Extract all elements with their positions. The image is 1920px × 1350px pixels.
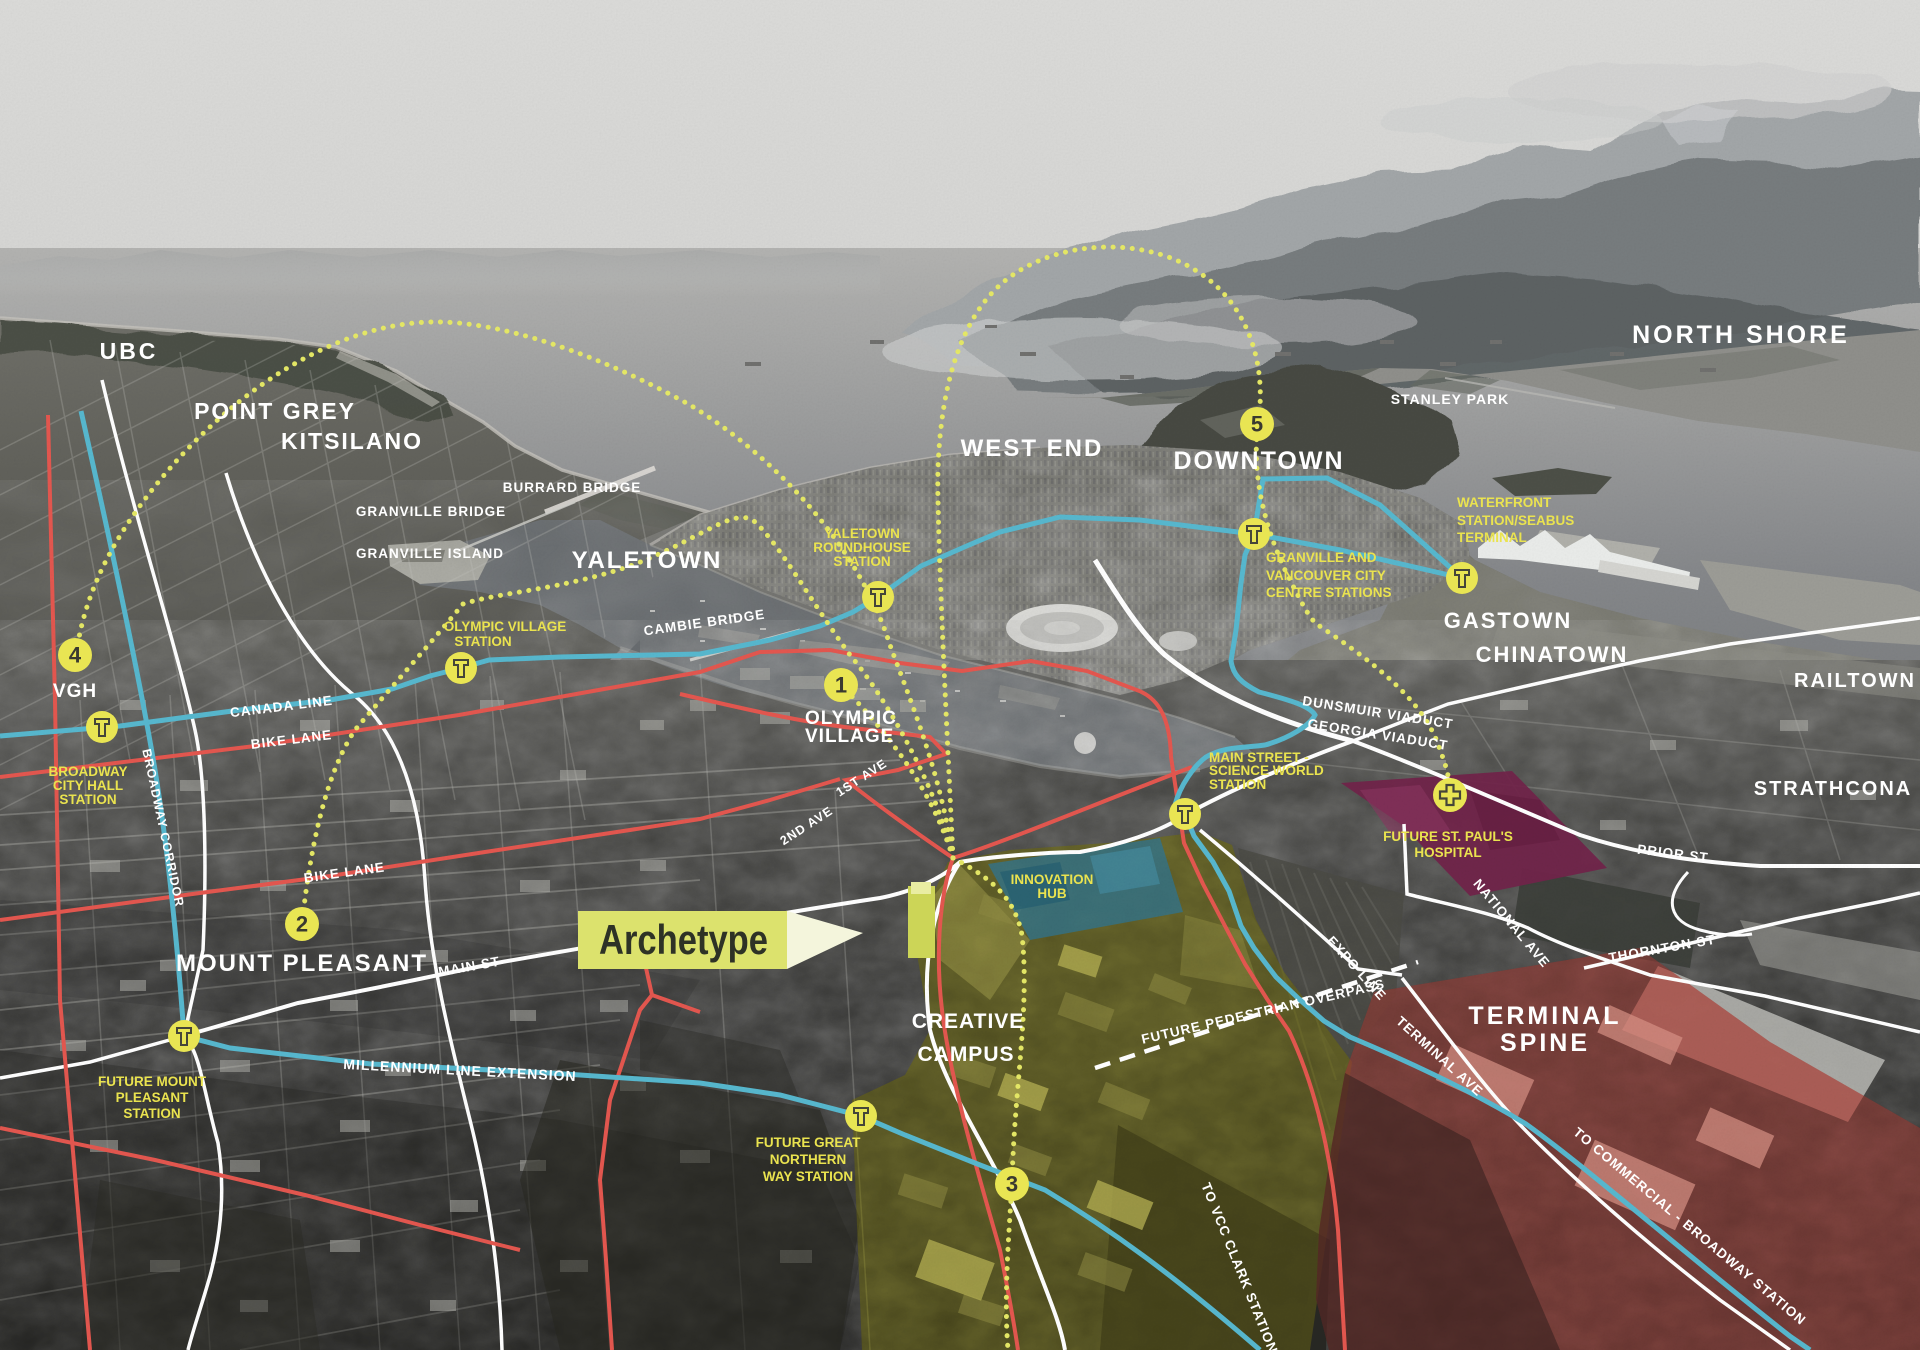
svg-text:STRATHCONA: STRATHCONA xyxy=(1754,778,1913,800)
svg-text:NORTH SHORE: NORTH SHORE xyxy=(1632,321,1850,349)
svg-text:OLYMPIC VILLAGE: OLYMPIC VILLAGE xyxy=(444,619,567,634)
svg-text:3: 3 xyxy=(1006,1172,1018,1197)
svg-text:DOWNTOWN: DOWNTOWN xyxy=(1173,447,1344,475)
svg-text:TERMINAL: TERMINAL xyxy=(1468,1002,1621,1030)
svg-text:CITY HALL: CITY HALL xyxy=(53,778,123,793)
svg-text:STATION: STATION xyxy=(123,1106,180,1121)
svg-text:VGH: VGH xyxy=(53,681,97,702)
svg-text:ROUNDHOUSE: ROUNDHOUSE xyxy=(813,540,911,555)
svg-text:STATION: STATION xyxy=(1209,777,1266,792)
svg-text:POINT GREY: POINT GREY xyxy=(194,398,356,424)
svg-text:PLEASANT: PLEASANT xyxy=(116,1090,190,1105)
svg-text:GRANVILLE BRIDGE: GRANVILLE BRIDGE xyxy=(356,504,506,519)
svg-text:NORTHERN: NORTHERN xyxy=(770,1152,847,1167)
svg-text:STATION/SEABUS: STATION/SEABUS xyxy=(1457,513,1574,528)
svg-text:BROADWAY: BROADWAY xyxy=(48,764,127,779)
svg-text:VILLAGE: VILLAGE xyxy=(805,726,894,747)
svg-text:GASTOWN: GASTOWN xyxy=(1444,608,1572,633)
svg-text:STATION: STATION xyxy=(454,634,511,649)
svg-text:1: 1 xyxy=(835,673,847,698)
svg-text:WEST END: WEST END xyxy=(961,435,1104,462)
svg-text:YALETOWN: YALETOWN xyxy=(572,547,723,574)
svg-text:STATION: STATION xyxy=(59,792,116,807)
svg-text:RAILTOWN: RAILTOWN xyxy=(1794,670,1916,692)
svg-text:VANCOUVER CITY: VANCOUVER CITY xyxy=(1266,568,1386,583)
svg-text:INNOVATION: INNOVATION xyxy=(1011,872,1094,887)
svg-text:WAY STATION: WAY STATION xyxy=(763,1169,853,1184)
svg-text:4: 4 xyxy=(69,643,82,668)
svg-text:UBC: UBC xyxy=(100,338,159,364)
svg-text:GRANVILLE ISLAND: GRANVILLE ISLAND xyxy=(356,546,504,561)
svg-text:SCIENCE WORLD: SCIENCE WORLD xyxy=(1209,763,1324,778)
svg-text:GRANVILLE AND: GRANVILLE AND xyxy=(1266,550,1377,565)
svg-text:HOSPITAL: HOSPITAL xyxy=(1414,845,1481,860)
svg-text:2: 2 xyxy=(296,912,308,937)
svg-text:HUB: HUB xyxy=(1037,886,1066,901)
svg-text:CENTRE STATIONS: CENTRE STATIONS xyxy=(1266,585,1392,600)
svg-text:MOUNT PLEASANT: MOUNT PLEASANT xyxy=(176,950,428,977)
svg-text:KITSILANO: KITSILANO xyxy=(281,428,423,454)
svg-text:WATERFRONT: WATERFRONT xyxy=(1457,495,1552,510)
svg-text:FUTURE MOUNT: FUTURE MOUNT xyxy=(98,1074,207,1089)
svg-text:CREATIVE: CREATIVE xyxy=(912,1010,1025,1033)
svg-text:TERMINAL: TERMINAL xyxy=(1457,530,1527,545)
svg-text:STATION: STATION xyxy=(833,554,890,569)
svg-text:FUTURE ST. PAUL'S: FUTURE ST. PAUL'S xyxy=(1383,829,1513,844)
svg-text:BURRARD BRIDGE: BURRARD BRIDGE xyxy=(503,480,642,495)
svg-text:YALETOWN: YALETOWN xyxy=(824,526,900,541)
svg-text:SPINE: SPINE xyxy=(1500,1029,1590,1057)
svg-text:Archetype: Archetype xyxy=(599,916,768,963)
svg-text:CAMPUS: CAMPUS xyxy=(917,1043,1014,1066)
svg-text:5: 5 xyxy=(1251,412,1263,437)
svg-text:FUTURE GREAT: FUTURE GREAT xyxy=(756,1135,861,1150)
svg-text:CHINATOWN: CHINATOWN xyxy=(1476,642,1629,667)
svg-text:STANLEY PARK: STANLEY PARK xyxy=(1391,391,1510,407)
